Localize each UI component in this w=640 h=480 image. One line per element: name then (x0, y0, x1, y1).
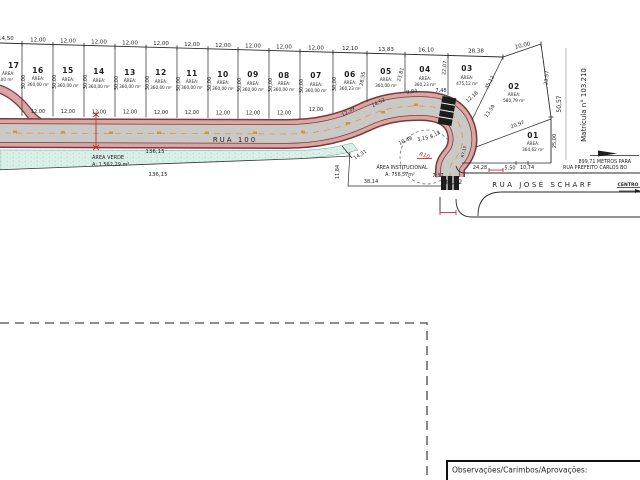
lamp-marker-icon (253, 132, 257, 135)
side-dim-23-81: 23,81 (396, 67, 406, 82)
lot-area-value: 360,23 m² (339, 86, 361, 91)
frontage-dim: 12,00 (61, 109, 75, 115)
observacoes-label: Observações/Carimbos/Aprovações: (452, 466, 587, 475)
lamp-marker-icon (109, 132, 113, 135)
rjs-centro: CENTRO (618, 182, 639, 188)
area-verde-value: A: 1.562,29 m² (92, 162, 129, 168)
dim-7-37: 7,37 (432, 173, 443, 179)
lot-area-label: ÁREA: (155, 79, 168, 84)
side-dim-22-07: 22,07 (441, 61, 448, 76)
boundary-top-line (0, 43, 541, 57)
dim-18-49: 18,49 (398, 135, 414, 146)
frontage-dim: 12,00 (277, 111, 291, 117)
boundary-right-line (541, 44, 551, 163)
top-dim: 10,00 (514, 41, 531, 51)
dim-24-28: 24,28 (473, 165, 487, 171)
top-dim: 12,00 (215, 43, 231, 49)
lot-area-value: 360,00 m² (57, 83, 79, 88)
radius-r10: R10 (418, 152, 431, 161)
dim-12-18: 12,18 (465, 90, 480, 104)
rjs-south-line (478, 192, 640, 216)
lot-number: 01 (527, 131, 538, 140)
lot-area-value: 364,62 m² (522, 147, 544, 152)
frontage-dim: 12,00 (246, 111, 260, 117)
site-plan-canvas: 14,50 12,00 12,00 12,00 12,00 12,00 12,0… (0, 0, 640, 480)
lot-area-value: 360,00 m² (212, 86, 234, 91)
direction-arrow-icon (590, 151, 639, 157)
lamp-marker-icon (61, 131, 65, 134)
lot-area-value: 360,00 m² (150, 85, 172, 90)
top-dim: 13,83 (378, 47, 394, 53)
side-dim-28-55: 28,55 (359, 71, 367, 86)
lot-area-value: 04,00 m² (0, 77, 13, 82)
dim-13-59: 13,59 (484, 104, 497, 119)
lot-area-label: ÁREA: (93, 78, 106, 83)
lot-number: 12 (155, 68, 166, 77)
lot-number: 05 (380, 67, 391, 76)
lot-number: 06 (344, 70, 355, 79)
dim-35-12: 35,12 (484, 75, 496, 90)
dim-20-97: 20,97 (510, 120, 526, 131)
lot-area-label: ÁREA: (124, 78, 137, 83)
lot-area-label: ÁREA: (380, 77, 393, 82)
lot-area-label: ÁREA: (461, 75, 474, 80)
lot-area-label: ÁREA: (247, 81, 260, 86)
lot-area-value: 360,00 m² (242, 87, 264, 92)
lot-area-value: 360,00 m² (305, 88, 327, 93)
frontage-dim: 12,00 (185, 110, 199, 116)
top-dim: 12,00 (153, 41, 169, 47)
lot-number: 03 (461, 64, 472, 73)
lot-number: 08 (278, 71, 289, 80)
dim-8-12: 8,12 (429, 130, 442, 141)
side-dim-50-57: 50,57 (556, 95, 563, 112)
dim-38-14: 38,14 (364, 179, 378, 185)
lot-number: 15 (62, 66, 73, 75)
lot-area-label: ÁREA: (310, 82, 323, 87)
matricula-label: Matrícula n° 103.210 (580, 68, 588, 142)
lot-number: 14 (93, 67, 104, 76)
frontage-dim: 12,00 (31, 109, 45, 115)
observacoes-box: Observações/Carimbos/Aprovações: (447, 461, 640, 480)
lot-area-value: 360,00 m² (181, 85, 203, 90)
rjs-note-line1: 899,71 METROS PARA (579, 159, 632, 165)
frontage-dim: 12,00 (123, 110, 137, 116)
lot-number: 02 (508, 82, 519, 91)
top-dim: 14,50 (0, 36, 14, 42)
lamp-marker-icon (13, 131, 17, 134)
dim-10-74: 10,74 (520, 165, 534, 171)
lamp-marker-icon (414, 104, 418, 107)
dim-136-15-top: 136,15 (145, 149, 165, 155)
lot-area-label: ÁREA: (508, 92, 521, 97)
lot-number: 13 (124, 68, 135, 77)
lot-number: 04 (419, 65, 430, 74)
lot-area-label: ÁREA: (344, 80, 357, 85)
lot-number: 10 (217, 70, 228, 79)
lot-area-label: ÁREA: (32, 76, 45, 81)
frontage-dim: 12,00 (92, 110, 106, 116)
top-dim: 12,00 (60, 39, 76, 45)
lot-area-label: ÁREA: (527, 141, 540, 146)
top-dim: 12,00 (245, 44, 261, 50)
lot-area-value: 360,23 m² (414, 82, 436, 87)
dim-35-02: 35,02 (444, 178, 463, 186)
lamp-marker-icon (346, 122, 350, 125)
top-dim: 16,10 (418, 48, 434, 54)
frontage-dim: 12,00 (216, 111, 230, 117)
lot-area-label: ÁREA: (278, 81, 291, 86)
top-dim: 12,00 (91, 40, 107, 46)
lot-area-label: ÁREA: (2, 71, 15, 76)
lot-number: 17 (8, 61, 19, 70)
lamp-marker-icon (157, 132, 161, 135)
institutional-value: A: 756,57m² (385, 172, 415, 178)
rjs-note-line2: RUA PREFEITO CARLOS BO (563, 165, 627, 171)
rjs-name: RUA JOSÉ SCHARF (492, 180, 593, 189)
lot-number: 11 (186, 69, 197, 78)
institutional-title: ÁREA INSTITUCIONAL (376, 164, 428, 171)
lot-area-label: ÁREA: (62, 77, 75, 82)
lamp-marker-icon (205, 132, 209, 135)
dashed-frame (0, 323, 427, 480)
lot-number: 09 (247, 70, 258, 79)
lot-area-value: 360,00 m² (375, 83, 397, 88)
area-verde-title: ÁREA VERDE (92, 154, 124, 161)
lot-area-value: 360,00 m² (27, 82, 49, 87)
top-dim: 12,00 (30, 38, 46, 44)
lot-number: 07 (310, 71, 321, 80)
lamp-marker-icon (381, 111, 385, 114)
depth-dim: 30,00 (21, 75, 27, 89)
top-dim: 12,00 (184, 42, 200, 48)
top-dim: 12,00 (308, 46, 324, 52)
dim-7-48: 7,48 (435, 88, 446, 94)
lot-area-value: 360,00 m² (119, 84, 141, 89)
lot-area-label: ÁREA: (419, 76, 432, 81)
top-dim: 12,00 (122, 41, 138, 47)
depth-dim: 30,00 (332, 77, 338, 91)
dim-136-15-bottom: 136,15 (148, 172, 168, 178)
lot-number: 16 (32, 66, 43, 75)
lot-area-label: ÁREA: (186, 79, 199, 84)
rua-jose-scharf-lines (440, 166, 640, 217)
depth-dim: 30,00 (299, 79, 305, 93)
lot-area-value: 360,00 m² (88, 84, 110, 89)
dim-11-84: 11,84 (335, 165, 341, 179)
rua-100-label: RUA 100 (213, 136, 257, 144)
lot-area-value: 580,79 m² (503, 98, 525, 103)
side-dim-23-57: 23,57 (543, 70, 550, 85)
side-dim-25-00: 25,00 (552, 134, 558, 148)
frontage-dim: 12,00 (154, 110, 168, 116)
lot-area-label: ÁREA: (217, 80, 230, 85)
lot-area-value: 360,00 m² (273, 87, 295, 92)
frontage-dim: 12,00 (309, 107, 323, 113)
dim-5-50: 5,50 (504, 166, 515, 172)
top-dim: 12,10 (342, 46, 358, 52)
dim-3-15: 3,15 (417, 135, 429, 143)
rjs-far-line (456, 199, 640, 217)
lot-area-value: 475,12 m² (456, 81, 478, 86)
lamp-marker-icon (301, 131, 305, 134)
top-dim: 28,38 (468, 49, 484, 55)
top-dim: 12,00 (276, 45, 292, 51)
